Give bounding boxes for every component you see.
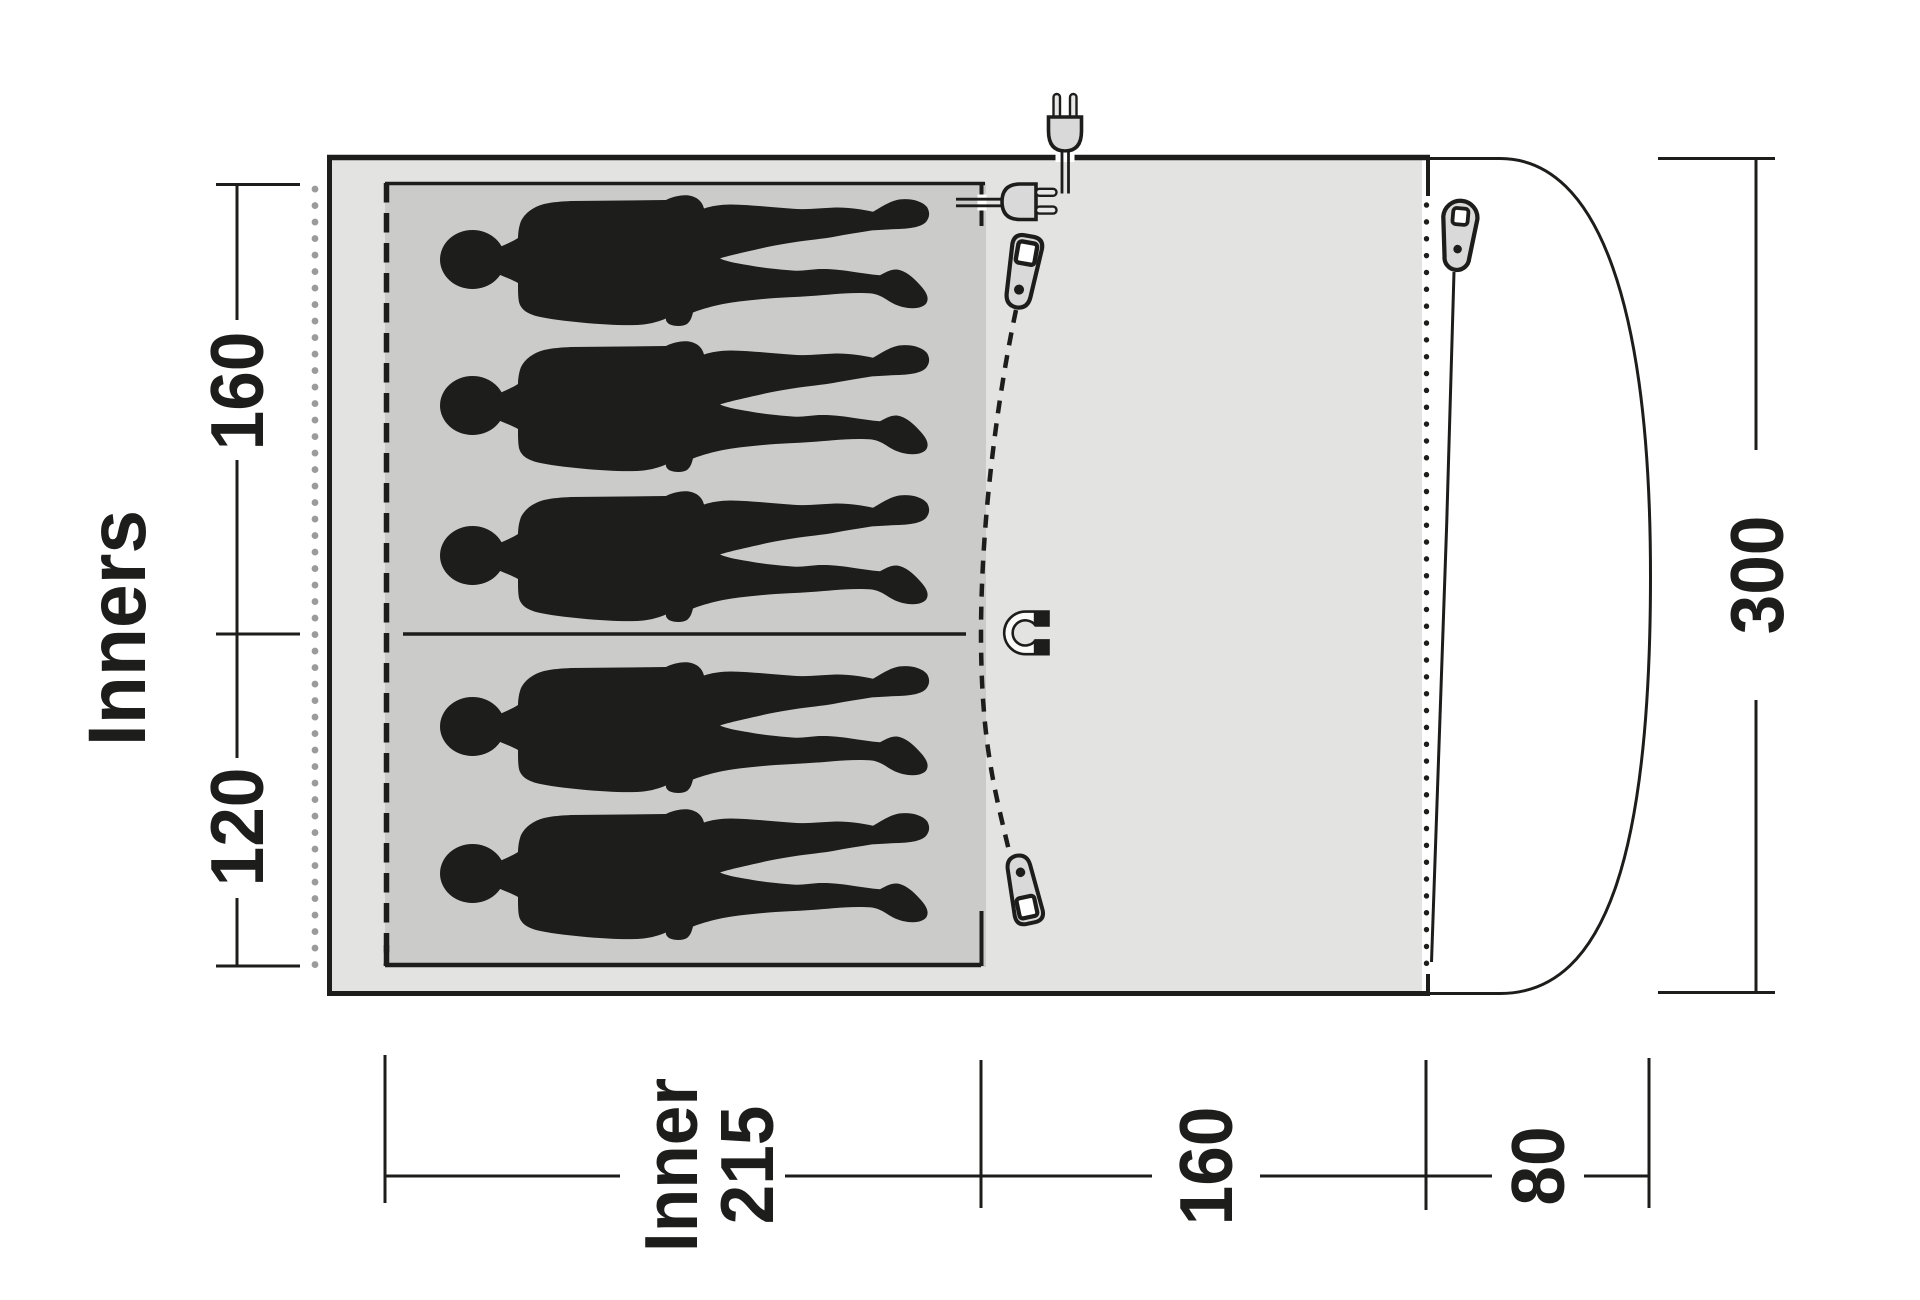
svg-text:215: 215 bbox=[706, 1106, 789, 1225]
svg-text:160: 160 bbox=[196, 332, 279, 451]
svg-text:120: 120 bbox=[196, 768, 279, 887]
svg-text:80: 80 bbox=[1497, 1126, 1580, 1205]
svg-text:Inner: Inner bbox=[630, 1078, 713, 1252]
svg-text:300: 300 bbox=[1716, 516, 1799, 635]
svg-text:160: 160 bbox=[1165, 1107, 1248, 1226]
svg-text:Inners: Inners bbox=[72, 510, 164, 746]
